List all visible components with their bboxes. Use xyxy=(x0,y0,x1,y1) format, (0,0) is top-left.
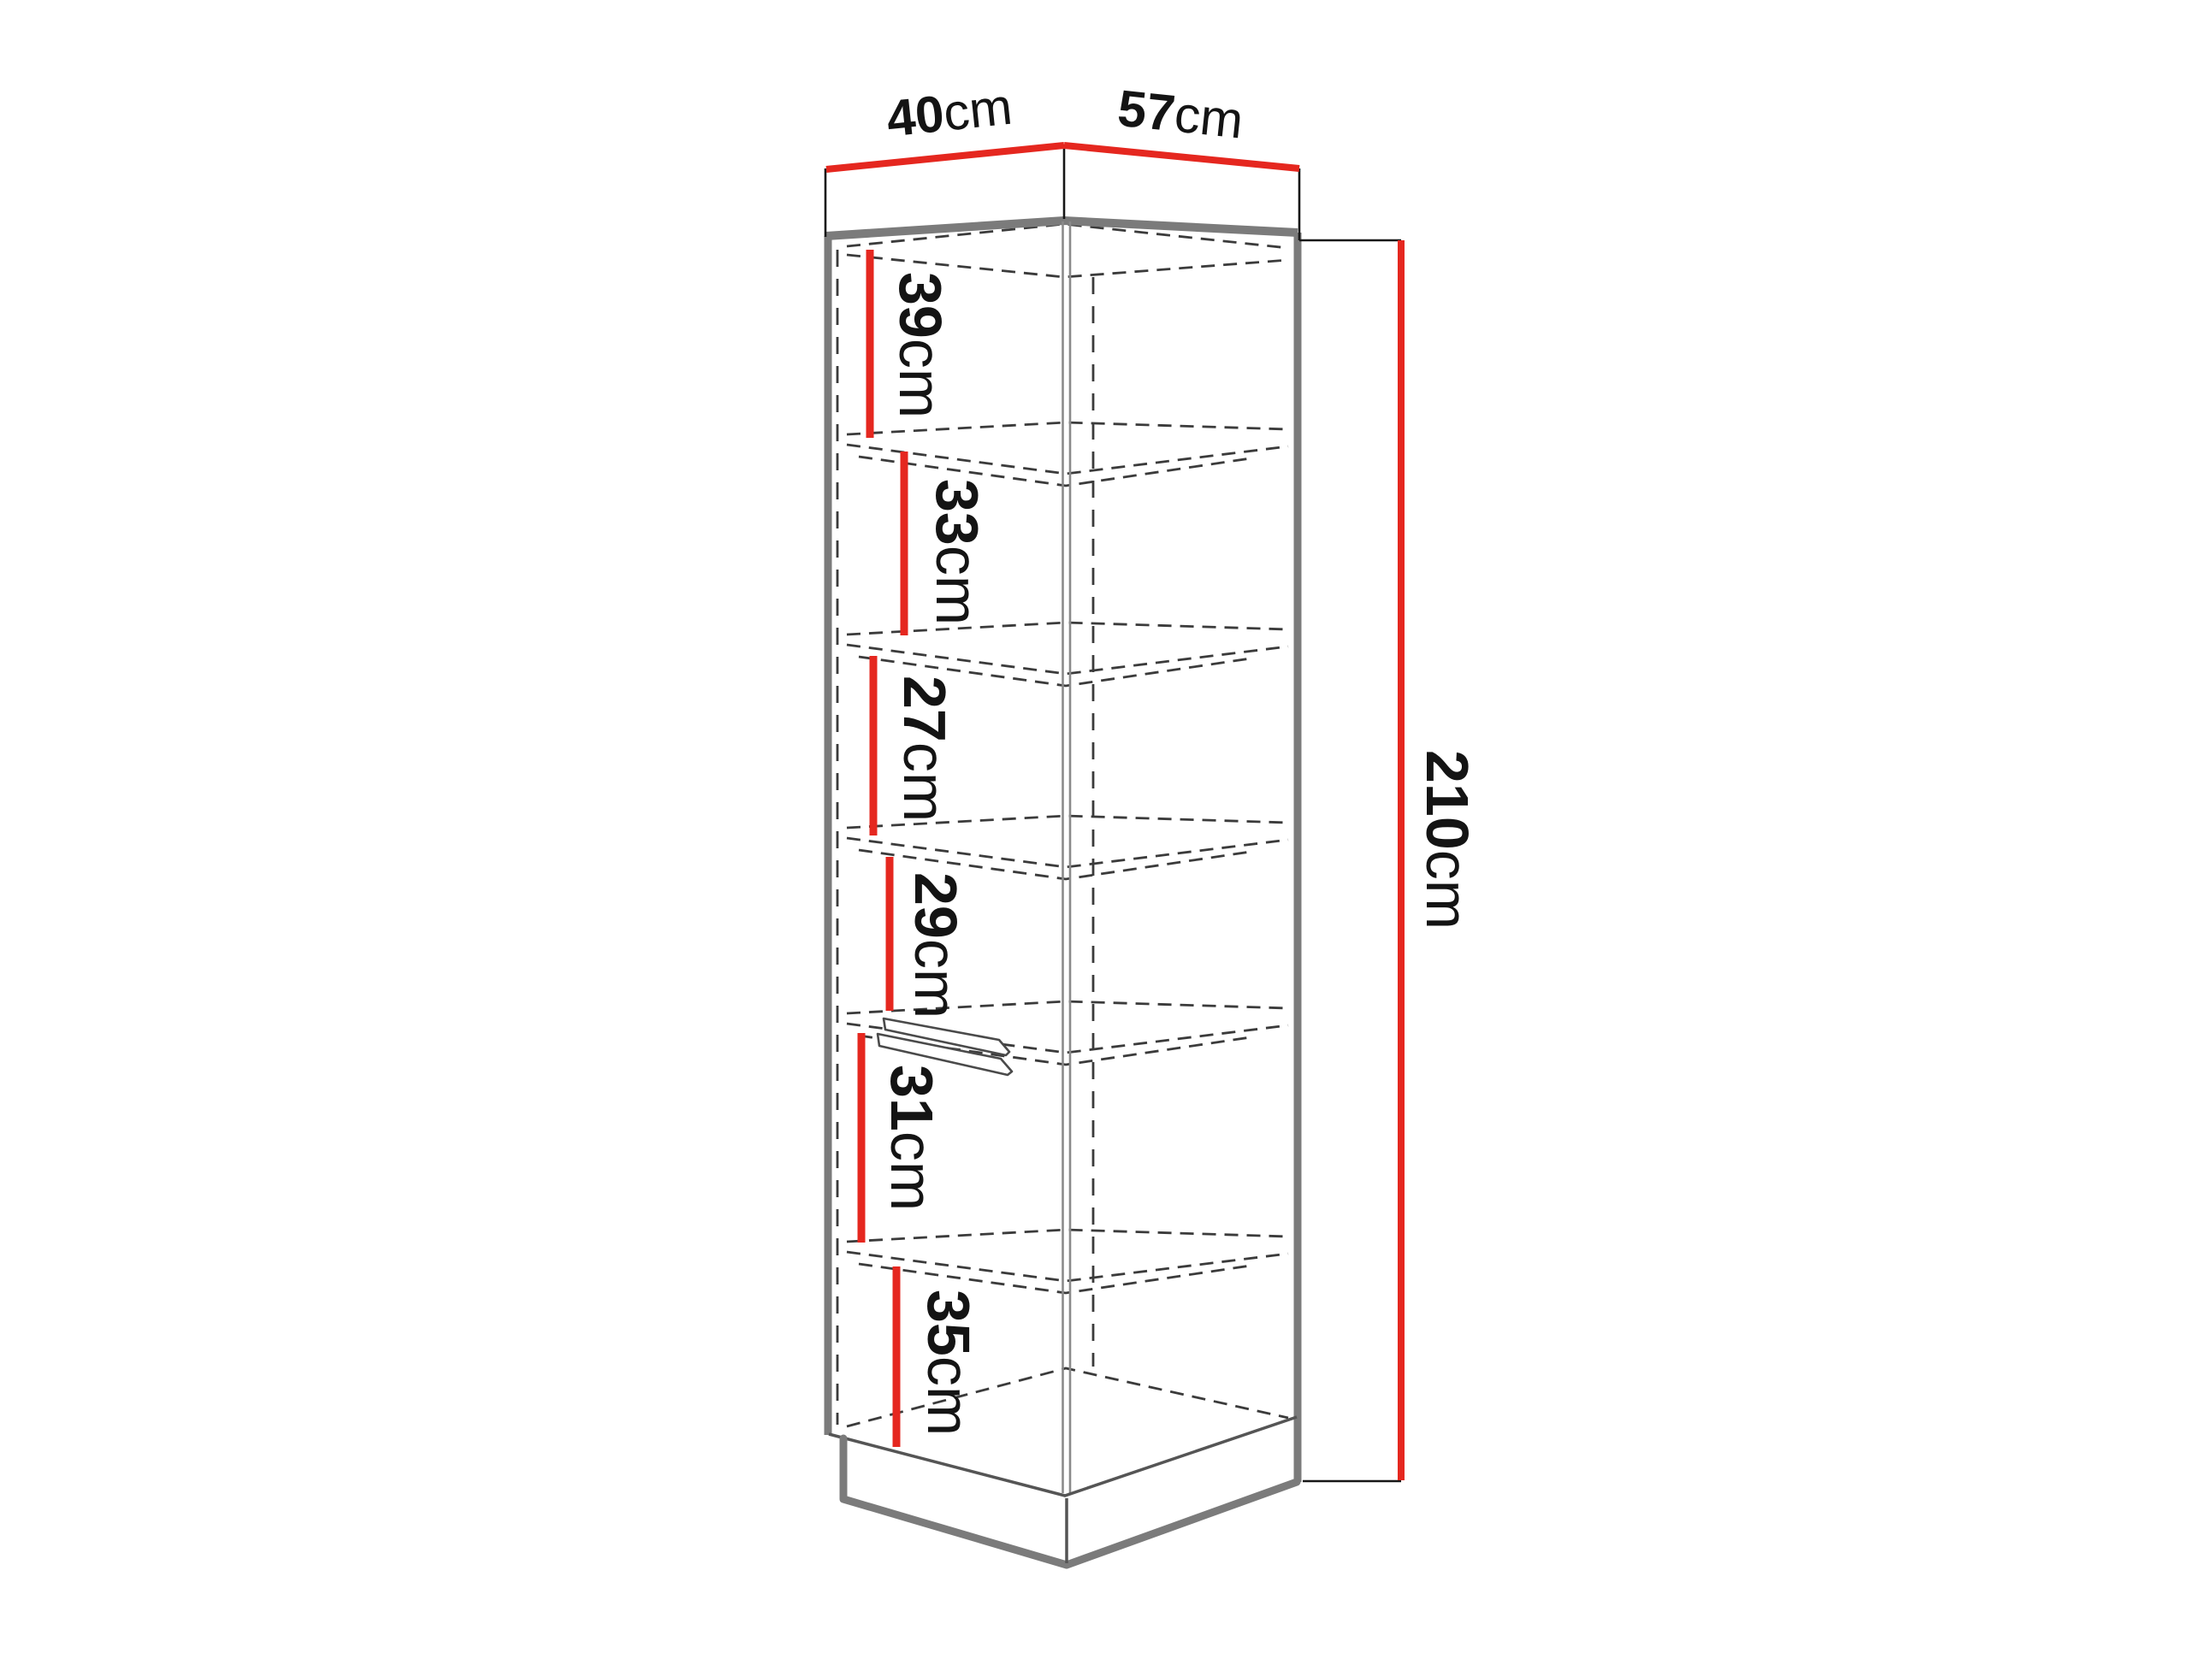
dimension-label-31cm: 31cm xyxy=(878,1065,945,1211)
dimension-label-35cm: 35cm xyxy=(915,1290,982,1436)
dimension-label-39cm: 39cm xyxy=(887,272,954,418)
dimension-total-height: 210cm xyxy=(1299,240,1481,1481)
dimension-line xyxy=(1064,145,1299,168)
dimension-label-33cm: 33cm xyxy=(924,479,991,625)
dimension-label-210cm: 210cm xyxy=(1414,750,1481,930)
dimension-line xyxy=(826,145,1064,169)
dimension-top-width-right: 57cm xyxy=(1064,80,1299,240)
dimension-label-57cm: 57cm xyxy=(1115,80,1246,150)
dimension-label-27cm: 27cm xyxy=(891,676,958,822)
diagram-canvas: 40cm 57cm 210cm 39cm 33cm 27cm 29cm xyxy=(0,0,2212,1659)
cabinet-dimension-diagram: 40cm 57cm 210cm 39cm 33cm 27cm 29cm xyxy=(0,0,2212,1659)
dimension-label-29cm: 29cm xyxy=(902,872,969,1018)
dimension-top-width-left: 40cm xyxy=(825,78,1064,237)
dimension-label-40cm: 40cm xyxy=(884,78,1014,148)
